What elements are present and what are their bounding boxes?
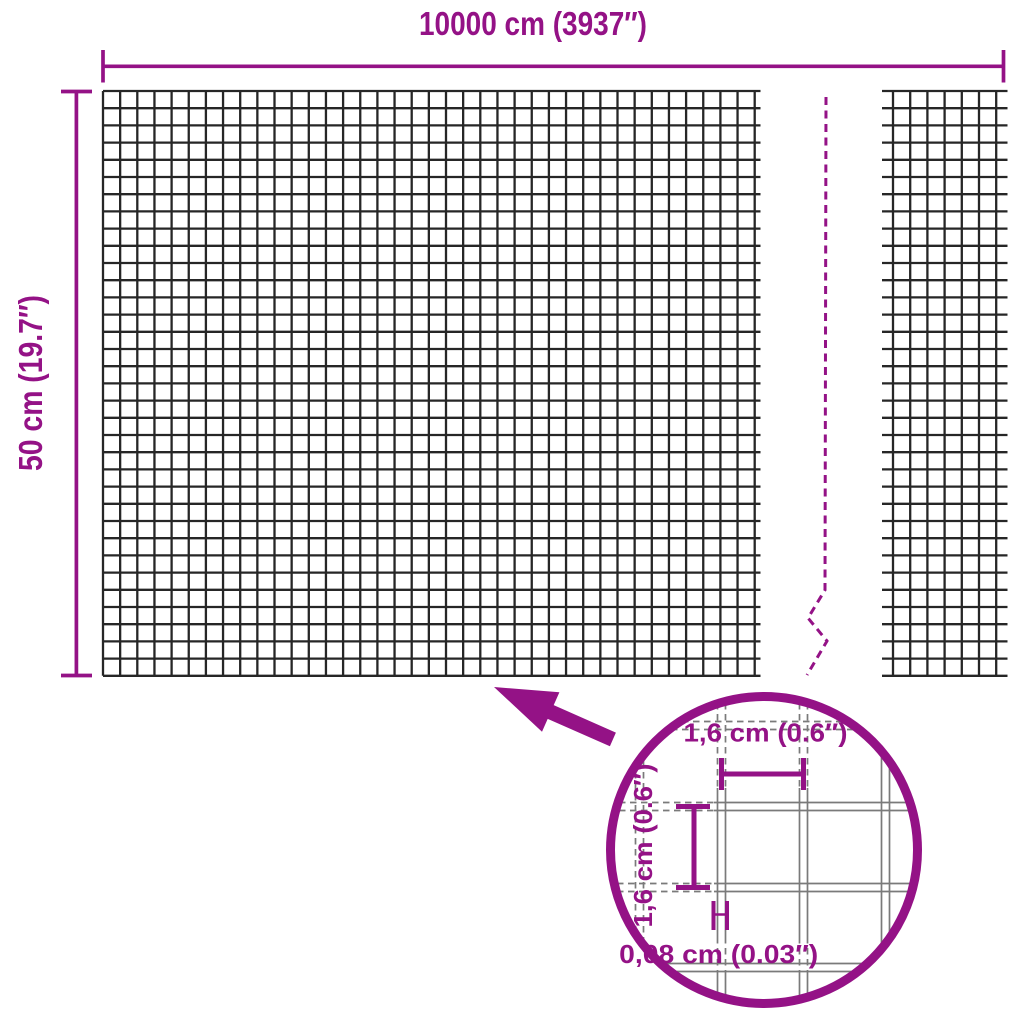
svg-text:0,08 cm (0.03″): 0,08 cm (0.03″)	[619, 939, 818, 969]
svg-text:1,6 cm (0.6″): 1,6 cm (0.6″)	[628, 764, 658, 928]
svg-text:50 cm (19.7″): 50 cm (19.7″)	[12, 295, 49, 471]
svg-text:10000 cm (3937″): 10000 cm (3937″)	[419, 5, 647, 42]
svg-text:1,6 cm (0.6″): 1,6 cm (0.6″)	[684, 718, 848, 748]
